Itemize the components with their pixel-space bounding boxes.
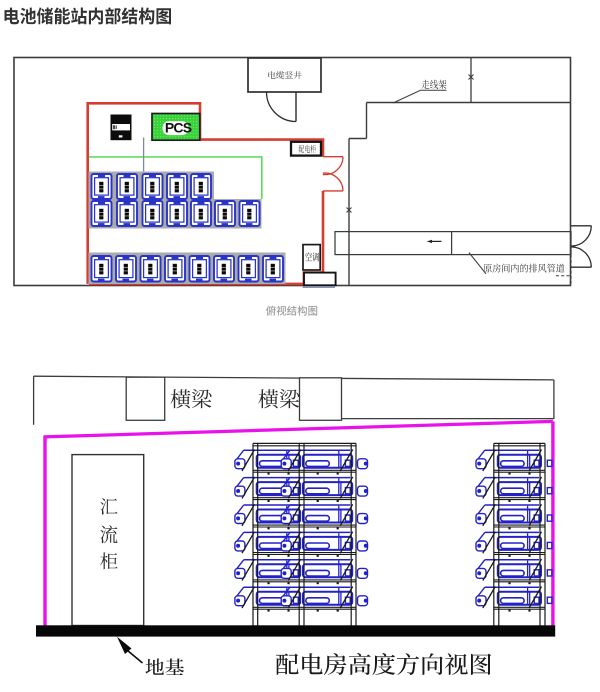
svg-text:PCS: PCS <box>165 120 192 136</box>
